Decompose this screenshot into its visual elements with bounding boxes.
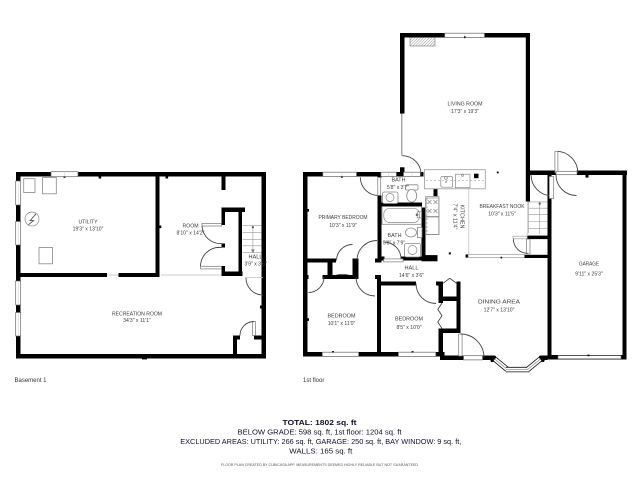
svg-text:BATH: BATH xyxy=(392,178,406,184)
svg-text:BEDROOM: BEDROOM xyxy=(395,317,423,323)
svg-text:14'6" x 3'6": 14'6" x 3'6" xyxy=(399,273,424,279)
svg-text:10'3" x 11'5": 10'3" x 11'5" xyxy=(488,212,516,218)
svg-text:BEDROOM: BEDROOM xyxy=(328,314,356,320)
svg-text:TOTAL: 1802 sq. ft: TOTAL: 1802 sq. ft xyxy=(283,418,358,427)
svg-text:BREAKFAST NOOK: BREAKFAST NOOK xyxy=(480,204,525,210)
svg-text:17'3" x 19'3": 17'3" x 19'3" xyxy=(451,109,479,115)
svg-text:19'3" x 13'10": 19'3" x 13'10" xyxy=(73,227,104,233)
svg-text:10'1" x 11'0": 10'1" x 11'0" xyxy=(328,321,356,327)
svg-text:HALL: HALL xyxy=(405,266,420,272)
svg-text:8'10" x 14'2": 8'10" x 14'2" xyxy=(177,231,205,237)
svg-text:12'7" x 13'10": 12'7" x 13'10" xyxy=(484,308,515,314)
svg-text:HALL: HALL xyxy=(249,255,264,261)
svg-text:5'8" x 7'9": 5'8" x 7'9" xyxy=(383,241,405,247)
svg-text:7'4" x 11'4": 7'4" x 11'4" xyxy=(452,204,458,230)
svg-text:GARAGE: GARAGE xyxy=(579,262,599,268)
svg-text:KITCHEN: KITCHEN xyxy=(459,205,465,229)
svg-text:PRIMARY BEDROOM: PRIMARY BEDROOM xyxy=(319,215,368,221)
svg-text:BATH: BATH xyxy=(388,233,402,239)
svg-text:WALLS: 165 sq. ft: WALLS: 165 sq. ft xyxy=(289,446,352,455)
svg-text:FLOOR PLAN CREATED BY CUBICASA: FLOOR PLAN CREATED BY CUBICASA APP. MEAS… xyxy=(221,463,418,467)
svg-text:8'5" x 10'0": 8'5" x 10'0" xyxy=(396,325,421,331)
svg-text:UTILITY: UTILITY xyxy=(79,220,98,226)
svg-text:EXCLUDED AREAS: UTILITY: 266 s: EXCLUDED AREAS: UTILITY: 266 sq. ft, GAR… xyxy=(180,437,461,446)
svg-text:9'11" x 25'3": 9'11" x 25'3" xyxy=(575,272,603,278)
svg-text:RECREATION ROOM: RECREATION ROOM xyxy=(112,312,162,318)
svg-text:BELOW GRADE: 598 sq. ft, 1st f: BELOW GRADE: 598 sq. ft, 1st floor: 1204… xyxy=(238,427,402,436)
svg-text:3'9" x 3'6": 3'9" x 3'6" xyxy=(244,262,266,268)
svg-text:LIVING ROOM: LIVING ROOM xyxy=(448,102,483,108)
svg-text:DINING AREA: DINING AREA xyxy=(478,300,520,306)
svg-text:ROOM: ROOM xyxy=(183,224,199,230)
svg-text:5'8" x 3'7": 5'8" x 3'7" xyxy=(387,185,409,191)
svg-text:1st floor: 1st floor xyxy=(303,378,324,384)
svg-text:Basement 1: Basement 1 xyxy=(15,378,48,384)
svg-text:10'3" x 11'9": 10'3" x 11'9" xyxy=(329,223,357,229)
svg-text:34'3" x 11'1": 34'3" x 11'1" xyxy=(123,318,151,324)
